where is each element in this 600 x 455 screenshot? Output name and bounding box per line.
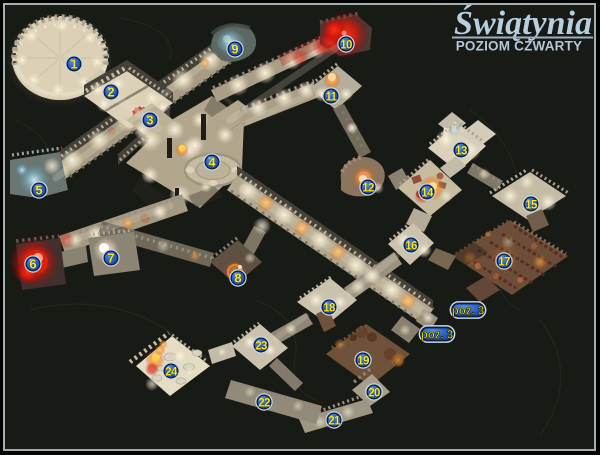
svg-text:10: 10 <box>340 40 352 52</box>
svg-text:15: 15 <box>525 200 538 212</box>
svg-text:poz. 3: poz. 3 <box>421 329 454 341</box>
svg-text:3: 3 <box>146 113 153 128</box>
svg-text:poz. 3: poz. 3 <box>452 305 485 317</box>
svg-text:7: 7 <box>107 251 114 266</box>
svg-text:13: 13 <box>455 146 467 158</box>
svg-text:18: 18 <box>323 303 336 315</box>
svg-text:POZIOM CZWARTY: POZIOM CZWARTY <box>456 39 583 54</box>
svg-text:11: 11 <box>326 92 338 104</box>
svg-text:1: 1 <box>70 57 77 72</box>
svg-text:19: 19 <box>357 356 369 368</box>
svg-text:Świątynia: Świątynia <box>454 4 592 42</box>
svg-text:2: 2 <box>107 85 114 100</box>
svg-text:16: 16 <box>405 241 417 253</box>
svg-text:8: 8 <box>234 271 241 286</box>
svg-text:4: 4 <box>208 155 216 170</box>
svg-text:9: 9 <box>231 42 238 57</box>
svg-text:20: 20 <box>368 388 380 400</box>
svg-text:6: 6 <box>29 257 36 272</box>
svg-text:5: 5 <box>35 183 42 198</box>
svg-text:17: 17 <box>498 257 510 269</box>
svg-text:14: 14 <box>421 188 434 200</box>
svg-text:24: 24 <box>165 367 178 379</box>
svg-text:12: 12 <box>362 183 374 195</box>
svg-text:22: 22 <box>258 398 270 410</box>
svg-text:23: 23 <box>255 341 267 353</box>
svg-text:21: 21 <box>328 416 341 428</box>
